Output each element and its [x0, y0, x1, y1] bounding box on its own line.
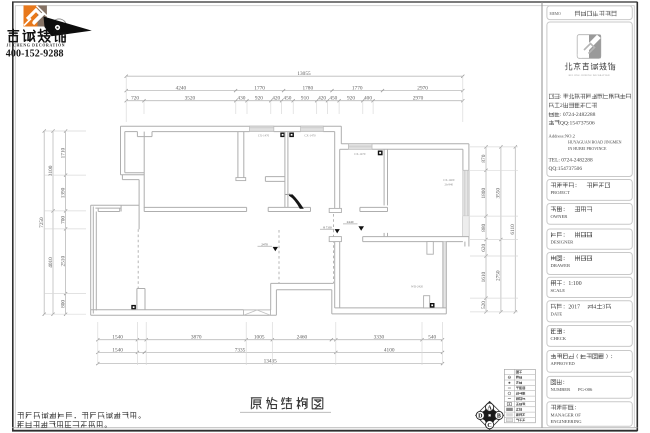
svg-text:CX-1470: CX-1470 — [354, 152, 366, 156]
svg-text:B: B — [497, 414, 501, 420]
svg-text:1770: 1770 — [254, 85, 265, 91]
svg-text:2750: 2750 — [496, 270, 502, 281]
svg-text:2440: 2440 — [347, 220, 354, 224]
svg-text:OWNER: OWNER — [551, 214, 569, 219]
svg-text:4010: 4010 — [48, 257, 54, 268]
svg-text:1710: 1710 — [60, 147, 66, 158]
svg-text:DATE: DATE — [551, 311, 563, 316]
svg-text:13435: 13435 — [264, 359, 278, 365]
svg-text:CHECK: CHECK — [551, 336, 567, 341]
svg-text:400: 400 — [364, 96, 372, 102]
svg-text:3550: 3550 — [496, 188, 502, 199]
svg-text:4240: 4240 — [176, 85, 187, 91]
svg-text:2017: 2017 — [568, 304, 580, 310]
svg-text:3520: 3520 — [185, 96, 196, 102]
svg-text:910: 910 — [301, 96, 309, 102]
svg-text:4: 4 — [593, 304, 596, 310]
svg-text:PG-006: PG-006 — [578, 387, 593, 392]
svg-text:IN HUBEI PROVINCE: IN HUBEI PROVINCE — [568, 146, 607, 151]
svg-text:APPROVED: APPROVED — [551, 361, 576, 366]
svg-text:3100: 3100 — [48, 165, 54, 176]
svg-text:1780: 1780 — [303, 85, 314, 91]
svg-text:7335: 7335 — [235, 347, 246, 353]
svg-text:420: 420 — [318, 96, 326, 102]
svg-text:1800: 1800 — [481, 188, 487, 199]
svg-text:CX-1470: CX-1470 — [304, 134, 316, 138]
svg-text:1390: 1390 — [60, 187, 66, 198]
svg-text:DRAWER: DRAWER — [551, 263, 571, 268]
svg-text:DESIGNER: DESIGNER — [551, 240, 575, 245]
svg-text:HUYAGUAN ROAD JINGMEN: HUYAGUAN ROAD JINGMEN — [568, 140, 622, 145]
svg-text:MANAGER OF: MANAGER OF — [551, 413, 582, 418]
svg-text:CX-1470: CX-1470 — [258, 134, 270, 138]
svg-text:CX-1400: CX-1400 — [443, 178, 455, 182]
svg-text:1770: 1770 — [352, 85, 363, 91]
svg-text:430: 430 — [237, 96, 245, 102]
svg-text:1540: 1540 — [112, 347, 123, 353]
svg-text:7250: 7250 — [39, 217, 45, 228]
svg-text:1005: 1005 — [254, 335, 265, 341]
svg-text:: 0724-2482288: : 0724-2482288 — [560, 112, 596, 118]
svg-text:420: 420 — [272, 96, 280, 102]
svg-text:920: 920 — [347, 96, 355, 102]
svg-text:1610: 1610 — [481, 271, 487, 282]
svg-text:2970: 2970 — [413, 96, 424, 102]
svg-text:1:100: 1:100 — [568, 281, 581, 287]
svg-text:6110: 6110 — [510, 224, 516, 235]
svg-text:920: 920 — [255, 96, 263, 102]
svg-text:620: 620 — [481, 243, 487, 251]
svg-text:WD-2420: WD-2420 — [411, 285, 423, 289]
svg-text:800: 800 — [60, 300, 66, 308]
svg-text:4100: 4100 — [384, 347, 395, 353]
svg-text:3330: 3330 — [374, 335, 385, 341]
svg-text:3870: 3870 — [191, 335, 202, 341]
svg-text:2970: 2970 — [417, 85, 428, 91]
svg-text:2: 2 — [560, 103, 563, 109]
svg-text:A: A — [487, 405, 492, 411]
svg-text:BEI JING JICHENG DECORATION: BEI JING JICHENG DECORATION — [569, 74, 610, 77]
svg-text:SCALE: SCALE — [551, 288, 566, 293]
svg-text:1540: 1540 — [112, 335, 123, 341]
svg-text:PROJECT: PROJECT — [551, 190, 571, 195]
svg-text:NUMBER: NUMBER — [551, 387, 572, 392]
svg-text:2510: 2510 — [60, 256, 66, 267]
svg-text:2470: 2470 — [261, 242, 268, 246]
svg-text:8 7.00: 8 7.00 — [323, 225, 332, 229]
svg-text:400-152-9288: 400-152-9288 — [6, 48, 64, 59]
svg-text:TEL: 0724-2482288: TEL: 0724-2482288 — [549, 157, 593, 163]
svg-text:13055: 13055 — [297, 71, 311, 77]
svg-text:520: 520 — [481, 301, 487, 309]
svg-text:JI CHENG DECORATION: JI CHENG DECORATION — [7, 43, 66, 47]
svg-text:C: C — [487, 423, 491, 429]
svg-text:720: 720 — [131, 96, 139, 102]
svg-text:QQ:154737506: QQ:154737506 — [549, 166, 583, 172]
svg-text:540: 540 — [428, 335, 436, 341]
svg-text:ENGINEERING: ENGINEERING — [551, 419, 583, 424]
svg-text:QQ:154737506: QQ:154737506 — [560, 120, 595, 126]
svg-text:D: D — [478, 414, 483, 420]
svg-text:2h-940: 2h-940 — [445, 183, 454, 187]
svg-text:450: 450 — [283, 96, 291, 102]
svg-text:Address:NO.2: Address:NO.2 — [549, 134, 576, 139]
svg-text:700: 700 — [60, 216, 66, 224]
svg-text:880: 880 — [481, 223, 487, 231]
svg-text:2460: 2460 — [297, 335, 308, 341]
svg-text:3: 3 — [602, 304, 605, 310]
svg-text:870: 870 — [481, 154, 487, 162]
svg-text:MEMO: MEMO — [550, 12, 562, 16]
svg-text:450: 450 — [329, 96, 337, 102]
